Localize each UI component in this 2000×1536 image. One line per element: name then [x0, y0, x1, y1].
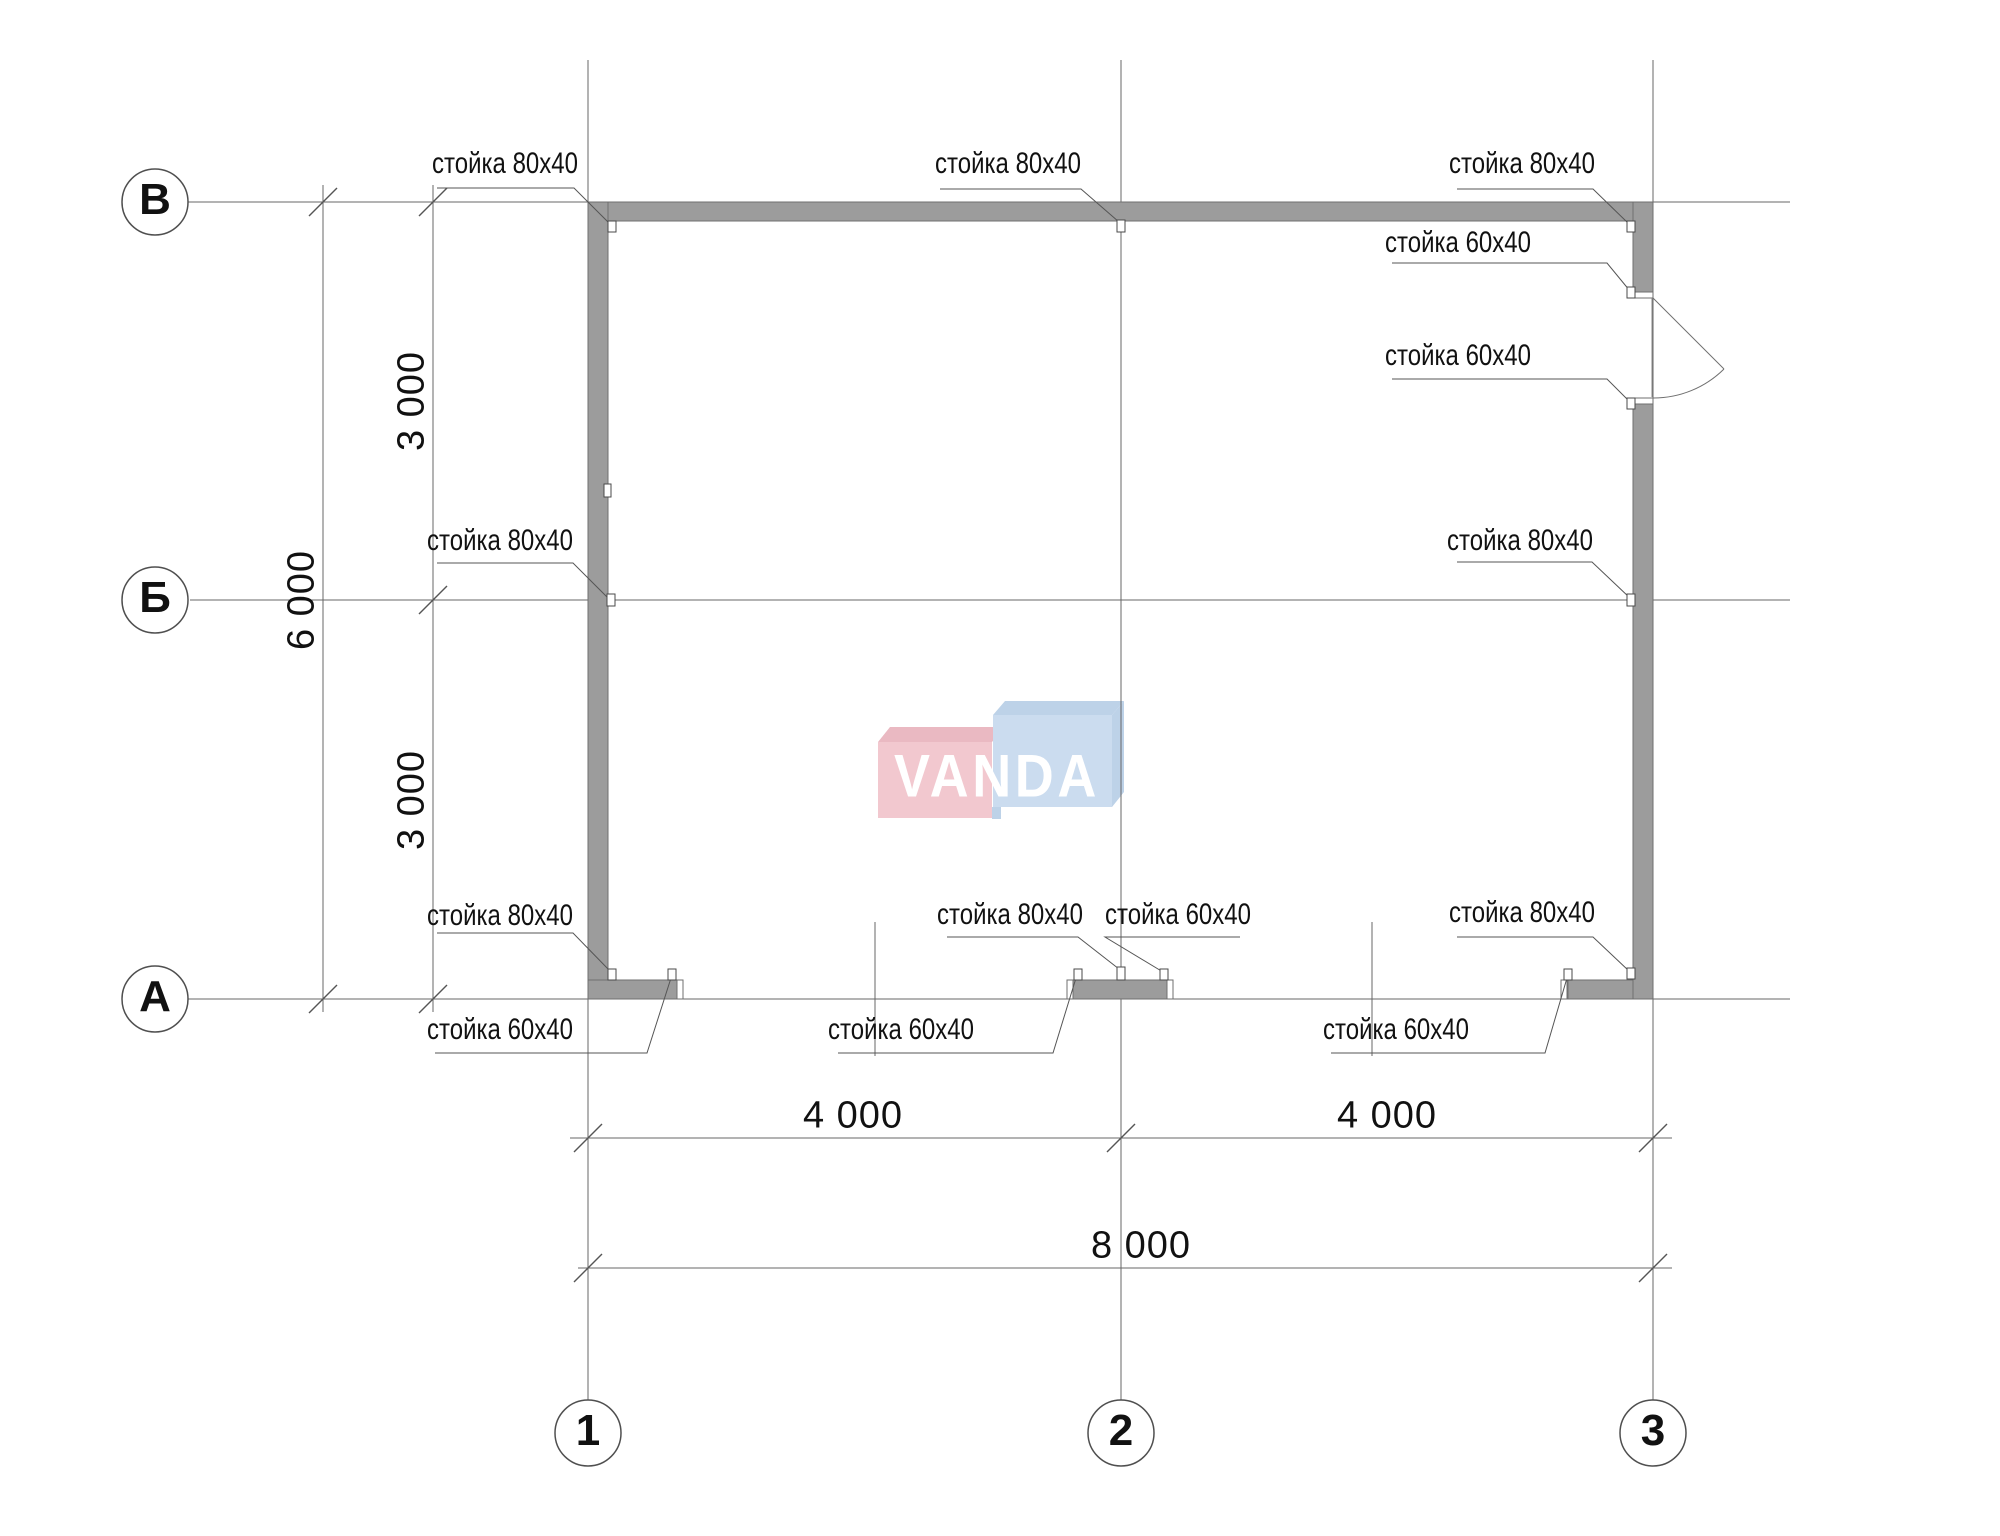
watermark-blue-side-face [1112, 701, 1124, 807]
door [1652, 298, 1724, 398]
watermark-text: VANDA [894, 742, 1100, 811]
wall-bottom-right-stub [1568, 980, 1633, 999]
post-label-bottom-middle-60: стойка 60x40 [1105, 898, 1251, 932]
post-label-door-upper: стойка 60x40 [1385, 226, 1531, 260]
axis-label-col-2: 2 [1109, 1406, 1133, 1456]
door-swing-arc [1653, 369, 1724, 398]
post-top-middle [1117, 220, 1125, 232]
watermark-blue-top-face [993, 701, 1124, 715]
post-label-below-right-60: стойка 60x40 [1323, 1013, 1469, 1047]
dimension-text-8000: 8 000 [1091, 1225, 1191, 1268]
wall-right-lower [1633, 398, 1653, 999]
post-label-bottom-right-80: стойка 80x40 [1449, 896, 1595, 930]
leader-door-lower [1392, 379, 1630, 402]
axis-label-row-v: В [139, 175, 171, 225]
post-label-door-lower: стойка 60x40 [1385, 339, 1531, 373]
post-label-top-right: стойка 80x40 [1449, 147, 1595, 181]
post-label-bottom-middle-80: стойка 80x40 [937, 898, 1083, 932]
wall-top [588, 202, 1653, 221]
leader-mid-left [437, 563, 608, 598]
wall-bottom-middle-stub [1073, 980, 1167, 999]
post-bottom-right-corner [1627, 968, 1635, 979]
wall-right-upper [1633, 202, 1653, 298]
post-mid-left [607, 594, 615, 606]
floor-plan-page: В Б А 1 2 3 3 000 3 000 6 000 4 000 4 00… [0, 0, 2000, 1536]
post-label-mid-right: стойка 80x40 [1447, 524, 1593, 558]
leader-bottom-left-80 [437, 933, 610, 971]
post-door-upper [1627, 287, 1635, 298]
watermark-pink-top-face [878, 727, 1004, 742]
post-label-top-left: стойка 80x40 [432, 147, 578, 181]
wall-end-caps [677, 292, 1653, 999]
post-bottom-left-stub-end [668, 969, 676, 980]
post-top-right-corner [1627, 221, 1635, 232]
post-bottom-middle-stub-left [1074, 969, 1082, 980]
post-bottom-right-stub-end [1564, 969, 1572, 980]
post-label-mid-left: стойка 80x40 [427, 524, 573, 558]
axis-label-col-3: 3 [1641, 1406, 1665, 1456]
post-label-bottom-left-80: стойка 80x40 [427, 899, 573, 933]
post-label-below-middle-60: стойка 60x40 [828, 1013, 974, 1047]
dimension-text-3000-lower: 3 000 [391, 750, 434, 850]
post-left-wall-intermediate [604, 484, 611, 497]
post-bottom-middle-stub-right [1160, 969, 1168, 980]
leader-bottom-right-80 [1457, 937, 1629, 971]
wall-left [588, 202, 608, 999]
dimension-text-6000: 6 000 [281, 550, 324, 650]
axis-label-row-b: Б [139, 573, 171, 623]
leader-top-left [437, 188, 610, 224]
post-bottom-middle-center [1117, 967, 1125, 980]
post-mid-right [1627, 594, 1635, 606]
leader-bottom-middle-80 [947, 937, 1119, 969]
post-label-below-left-60: стойка 60x40 [427, 1013, 573, 1047]
dimension-text-3000-upper: 3 000 [391, 351, 434, 451]
wall-bottom-left-stub [588, 980, 677, 999]
leader-mid-right [1457, 562, 1630, 598]
dimension-text-4000-left: 4 000 [803, 1095, 903, 1138]
post-bottom-left-corner [608, 969, 616, 980]
post-label-top-middle: стойка 80x40 [935, 147, 1081, 181]
door-leaf [1653, 298, 1724, 369]
axis-label-row-a: А [139, 972, 171, 1022]
post-door-lower [1627, 398, 1635, 409]
axis-label-col-1: 1 [576, 1406, 600, 1456]
leader-door-upper [1392, 263, 1630, 291]
dimension-text-4000-right: 4 000 [1337, 1095, 1437, 1138]
post-top-left-corner [608, 221, 616, 232]
